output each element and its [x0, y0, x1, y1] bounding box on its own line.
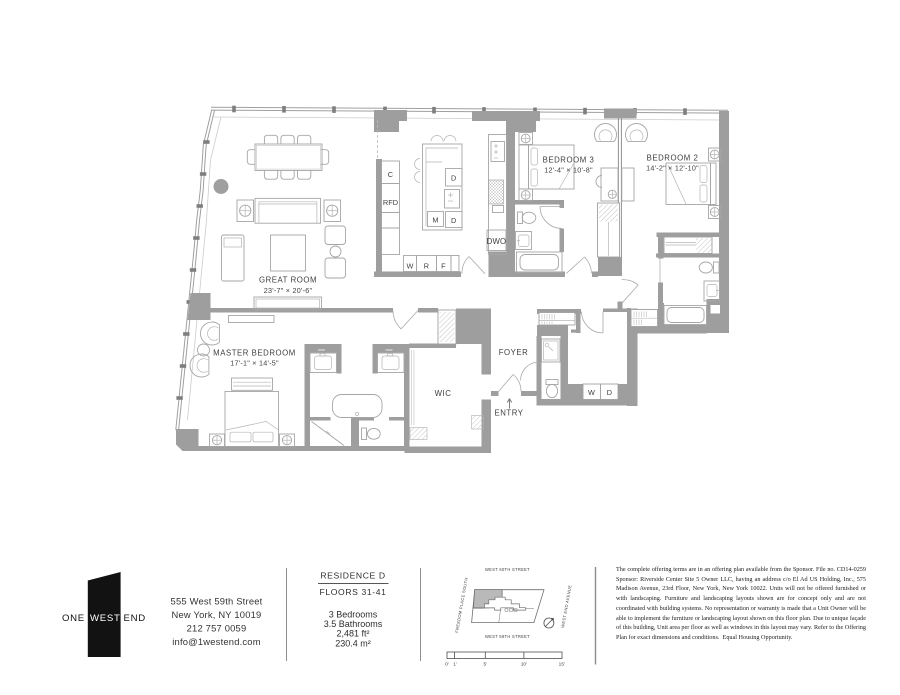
- svg-text:DWO: DWO: [487, 237, 507, 246]
- svg-text:5': 5': [484, 662, 488, 668]
- svg-text:MASTER BEDROOM: MASTER BEDROOM: [213, 349, 296, 358]
- svg-text:WEST END AVENUE: WEST END AVENUE: [560, 584, 572, 628]
- svg-text:23'-7" × 20'-6": 23'-7" × 20'-6": [264, 286, 313, 295]
- svg-text:WEST: WEST: [90, 613, 121, 624]
- svg-text:230.4 m²: 230.4 m²: [335, 639, 371, 649]
- svg-text:W: W: [406, 262, 413, 271]
- svg-text:R: R: [424, 262, 429, 271]
- svg-text:ENTRY: ENTRY: [494, 409, 523, 418]
- svg-text:M: M: [432, 216, 438, 225]
- svg-text:END: END: [124, 613, 146, 624]
- svg-text:212 757 0059: 212 757 0059: [187, 623, 247, 634]
- svg-text:BEDROOM 2: BEDROOM 2: [647, 154, 699, 163]
- svg-text:10': 10': [521, 662, 527, 668]
- svg-text:12'-4" × 10'-8": 12'-4" × 10'-8": [544, 166, 593, 175]
- svg-text:FLOORS 31-41: FLOORS 31-41: [320, 587, 387, 597]
- svg-text:D: D: [451, 174, 456, 183]
- svg-text:WEST 60TH STREET: WEST 60TH STREET: [485, 567, 530, 572]
- svg-text:17'-1" × 14'-5": 17'-1" × 14'-5": [230, 359, 279, 368]
- svg-text:14'-2" × 12'-10": 14'-2" × 12'-10": [646, 164, 699, 173]
- svg-text:W: W: [588, 388, 595, 397]
- svg-text:BEDROOM 3: BEDROOM 3: [543, 156, 595, 165]
- svg-text:WIC: WIC: [435, 389, 452, 398]
- svg-text:WEST 59TH STREET: WEST 59TH STREET: [485, 634, 530, 639]
- svg-text:3.5 Bathrooms: 3.5 Bathrooms: [324, 619, 383, 629]
- svg-text:info@1westend.com: info@1westend.com: [172, 636, 260, 647]
- svg-text:555 West 59th Street: 555 West 59th Street: [171, 596, 263, 607]
- svg-text:F: F: [441, 262, 446, 271]
- svg-text:2,481 ft²: 2,481 ft²: [336, 629, 369, 639]
- svg-text:RFD: RFD: [383, 198, 398, 207]
- svg-text:RESIDENCE D: RESIDENCE D: [320, 571, 385, 581]
- svg-text:New York, NY 10019: New York, NY 10019: [172, 609, 262, 620]
- svg-text:D: D: [607, 388, 612, 397]
- svg-text:C: C: [388, 170, 393, 179]
- svg-text:D: D: [451, 216, 456, 225]
- svg-text:FOYER: FOYER: [499, 348, 529, 357]
- svg-text:15': 15': [559, 662, 565, 668]
- svg-text:1': 1': [453, 662, 457, 668]
- svg-text:GREAT ROOM: GREAT ROOM: [259, 276, 317, 285]
- svg-text:FREEDOM PLACE SOUTH: FREEDOM PLACE SOUTH: [454, 577, 469, 633]
- svg-text:0': 0': [445, 662, 449, 668]
- svg-text:ONE: ONE: [62, 613, 85, 624]
- svg-text:3 Bedrooms: 3 Bedrooms: [329, 610, 378, 620]
